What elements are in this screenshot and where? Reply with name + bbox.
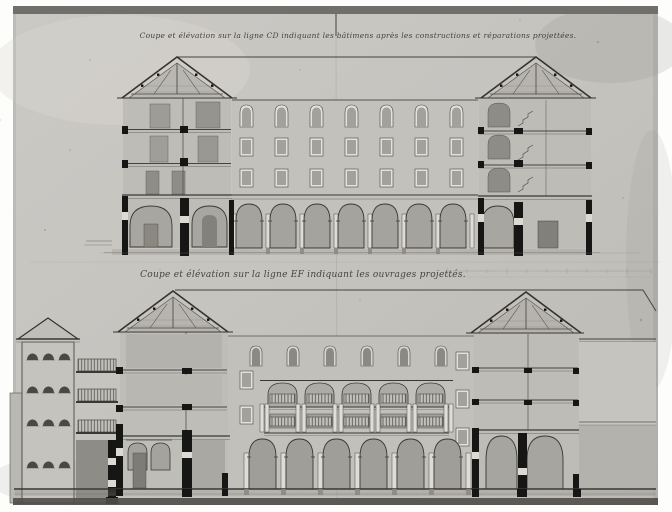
drawing-photo: Coupe et élévation sur la ligne CD indiq… [0, 0, 672, 512]
top-edge-strip [13, 6, 658, 14]
lower-caption: Coupe et élévation sur la ligne EF indiq… [140, 269, 466, 280]
lower-central-facade [228, 336, 474, 489]
lower-ground-line [14, 489, 656, 497]
right-boundary-wall [579, 342, 656, 489]
upper-caption: Coupe et élévation sur la ligne CD indiq… [140, 31, 577, 40]
bottom-edge-strip [13, 498, 658, 505]
photo-mount: Coupe et élévation sur la ligne CD indiq… [0, 0, 672, 512]
